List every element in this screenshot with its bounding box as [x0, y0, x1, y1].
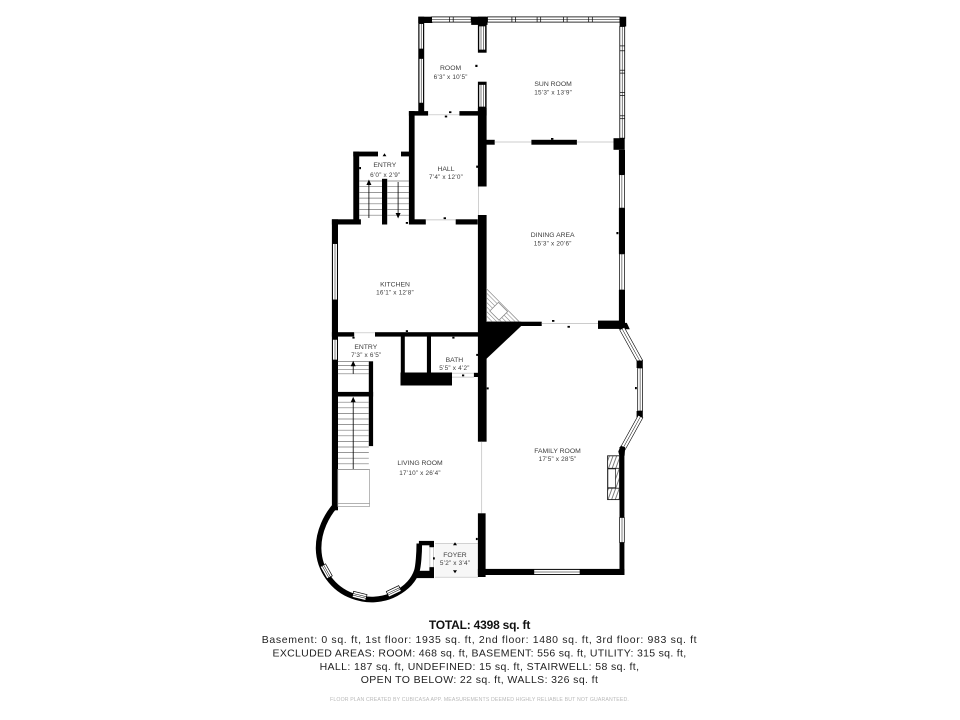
svg-text:ENTRY: ENTRY [354, 344, 377, 351]
svg-text:EXCLUDED AREAS: ROOM: 468 sq.: EXCLUDED AREAS: ROOM: 468 sq. ft, BASEME… [273, 647, 687, 659]
svg-text:17’10” x 26’4”: 17’10” x 26’4” [399, 470, 441, 477]
svg-text:LIVING ROOM: LIVING ROOM [397, 460, 443, 467]
svg-text:6’0” x 2’9”: 6’0” x 2’9” [370, 172, 400, 179]
svg-text:15’3” x 20’6”: 15’3” x 20’6” [534, 241, 572, 248]
svg-text:7’3” x 6’5”: 7’3” x 6’5” [351, 352, 381, 359]
svg-text:5’5” x 4’2”: 5’5” x 4’2” [439, 365, 469, 372]
svg-text:16’1” x 12’8”: 16’1” x 12’8” [376, 290, 414, 297]
svg-text:15’3” x 13’9”: 15’3” x 13’9” [534, 89, 572, 96]
svg-text:DINING AREA: DINING AREA [531, 232, 575, 239]
svg-text:17’5” x 28’5”: 17’5” x 28’5” [539, 456, 577, 463]
svg-text:7’4” x 12’0”: 7’4” x 12’0” [429, 174, 463, 181]
svg-text:BATH: BATH [446, 357, 464, 364]
svg-text:6’3” x 10’5”: 6’3” x 10’5” [434, 74, 468, 81]
svg-text:HALL: 187 sq. ft, UNDEFINED: 1: HALL: 187 sq. ft, UNDEFINED: 15 sq. ft, … [320, 661, 640, 673]
svg-text:FOYER: FOYER [443, 552, 467, 559]
svg-text:OPEN TO BELOW: 22 sq. ft, WALL: OPEN TO BELOW: 22 sq. ft, WALLS: 326 sq.… [361, 674, 599, 686]
svg-text:SUN ROOM: SUN ROOM [534, 81, 572, 88]
svg-text:KITCHEN: KITCHEN [380, 282, 410, 289]
svg-text:FLOOR PLAN CREATED BY CUBICASA: FLOOR PLAN CREATED BY CUBICASA APP. MEAS… [330, 697, 629, 703]
svg-text:HALL: HALL [437, 166, 454, 173]
svg-text:FAMILY ROOM: FAMILY ROOM [534, 448, 581, 455]
svg-text:ENTRY: ENTRY [373, 162, 396, 169]
svg-text:TOTAL: 4398 sq. ft: TOTAL: 4398 sq. ft [429, 618, 531, 632]
svg-text:5’2” x 3’4”: 5’2” x 3’4” [440, 560, 470, 567]
svg-text:Basement: 0 sq. ft, 1st floor:: Basement: 0 sq. ft, 1st floor: 1935 sq. … [262, 634, 697, 646]
svg-text:ROOM: ROOM [440, 65, 461, 72]
